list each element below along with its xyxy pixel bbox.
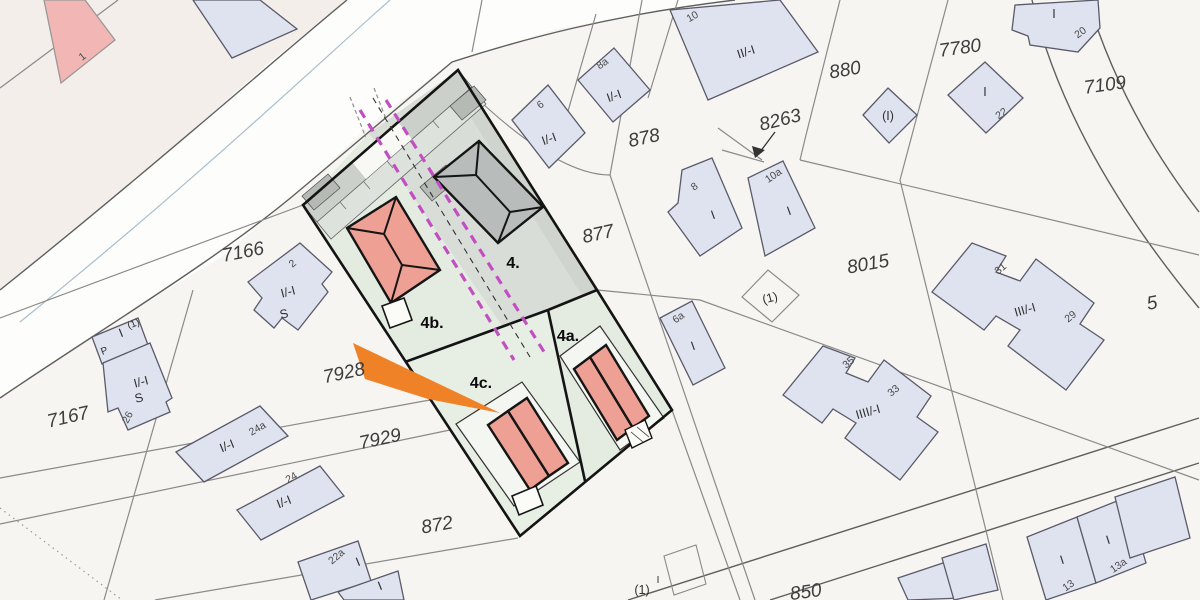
cadastral-map: 7166 7167 7928 7929 872 877 878 880 8263… [0,0,1200,600]
label-bottom-1-I: I [657,575,660,586]
curved-road-inner-edge [1088,0,1199,212]
building-8 [668,158,742,256]
path-dotted-line [0,508,122,600]
parcel-number-5: 5 [1145,292,1159,315]
parcel-number-7109: 7109 [1083,72,1128,99]
parcel-number-872: 872 [420,512,455,538]
parcel-number-8263: 8263 [757,105,804,136]
parcel-number-877: 877 [580,221,617,248]
parcel-number-7929: 7929 [357,425,403,454]
label-parcel-1: (1) [761,289,779,306]
cadastral-map-page: 7166 7167 7928 7929 872 877 878 880 8263… [0,0,1200,600]
parcel-number-8015: 8015 [845,250,891,278]
label-bottom-1: (1) [634,583,649,597]
site-area-4b-label: 4b. [420,315,443,332]
parcel-number-7928: 7928 [321,359,367,388]
parcel-number-7167: 7167 [45,402,92,432]
empty-parcel-outline [664,545,706,595]
parcel-number-880: 880 [828,57,863,83]
building-8a [578,48,650,122]
parcel-line [900,0,948,180]
building-20 [1012,0,1100,52]
storey-label-22: I [983,85,986,99]
parcel-number-878: 878 [626,125,662,152]
parcel-line [672,410,740,600]
parcel-number-7780: 7780 [938,35,983,62]
parcel-number-850: 850 [789,580,824,600]
parcel-sliver-lines [718,128,764,162]
building-6 [512,85,585,168]
site-area-4-label: 4. [506,255,519,272]
parcel-line [800,160,1199,255]
storey-label-diamond: (I) [882,109,894,123]
storey-label-20: I [1052,7,1055,21]
site-area-4a-label: 4a. [557,328,579,345]
site-area-4c-label: 4c. [470,375,492,392]
